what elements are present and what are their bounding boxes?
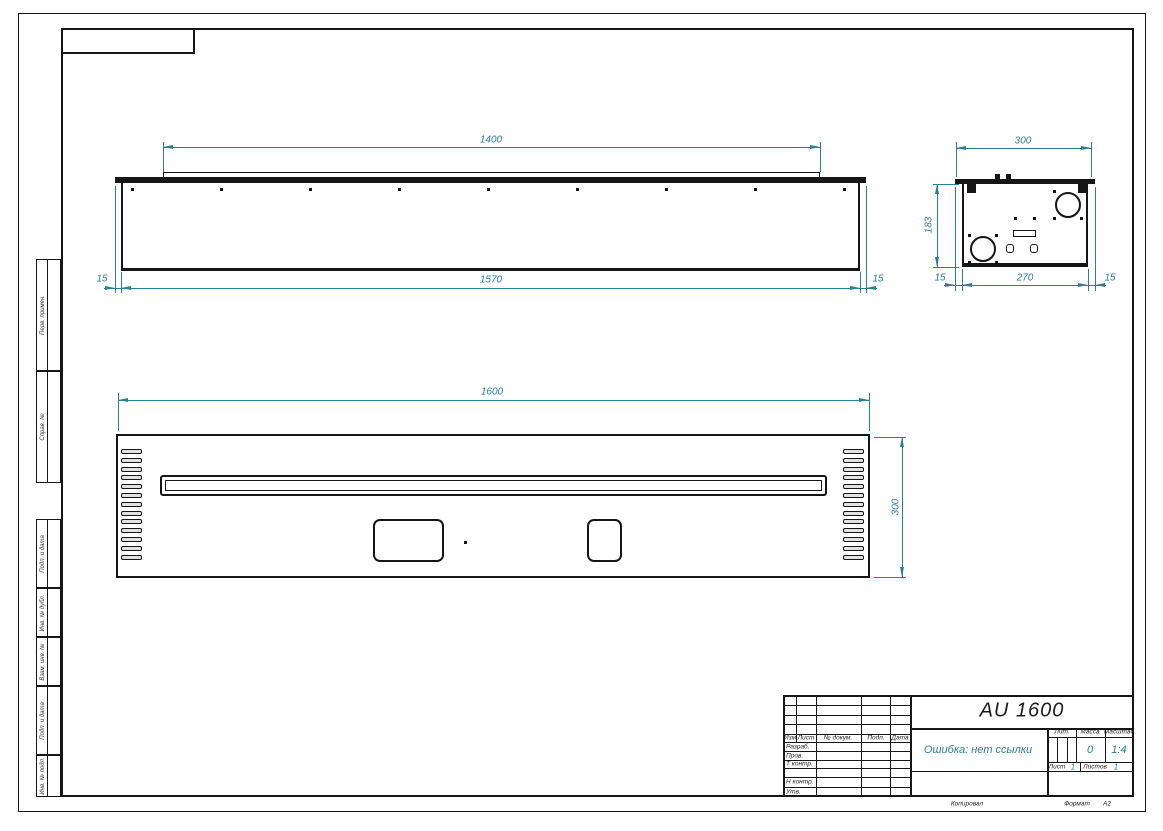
- vent-slot: [843, 555, 864, 560]
- cutout-small: [587, 519, 622, 562]
- vent-slot: [121, 511, 142, 516]
- arrow: [105, 286, 115, 290]
- side-tab: [995, 174, 1000, 179]
- row-developed: Разраб.: [786, 744, 810, 751]
- doc-name-error: Ошибка: нет ссылки: [924, 744, 1032, 756]
- arrow: [945, 283, 955, 287]
- rivet-hole: [131, 188, 134, 191]
- margin-cell-inv-podl: Инв. № подл.: [36, 755, 61, 797]
- dim-label-300-side: 300: [1015, 136, 1032, 147]
- extension-line: [1095, 187, 1096, 291]
- format-value: А2: [1103, 801, 1111, 808]
- fan-mount-hole: [1053, 217, 1056, 220]
- cutout-large: [373, 519, 444, 562]
- drawing-designation: AU 1600: [980, 700, 1065, 723]
- title-block-line: [783, 715, 910, 716]
- dim-line: [118, 400, 869, 401]
- vent-slot: [843, 537, 864, 542]
- vent-slot: [121, 502, 142, 507]
- vent-slot: [843, 528, 864, 533]
- extension-line: [962, 269, 963, 291]
- margin-cell-divider: [47, 259, 48, 371]
- col-izm: Изм: [784, 735, 796, 742]
- dim-label-300-front: 300: [891, 499, 902, 516]
- arrow: [866, 286, 876, 290]
- row-approved: Утв.: [786, 789, 801, 796]
- fan-mount-hole: [1053, 190, 1056, 193]
- dim-label-183: 183: [924, 217, 935, 234]
- rivet-hole: [843, 188, 846, 191]
- col-podp: Подп.: [867, 735, 884, 742]
- dim-line: [956, 148, 1091, 149]
- round-hole: [1030, 244, 1038, 253]
- arrow: [118, 398, 128, 402]
- rivet-hole: [665, 188, 668, 191]
- extension-line: [820, 142, 821, 172]
- margin-cell-podp-data-2: Подп. и дата: [36, 686, 61, 755]
- margin-label: Перв. примен.: [40, 295, 46, 335]
- title-block-line: [783, 787, 910, 788]
- dim-label-15-left: 15: [96, 274, 107, 285]
- margin-cell-divider: [47, 371, 48, 483]
- arrow: [163, 145, 173, 149]
- col-data: Дата: [891, 735, 908, 742]
- arrow: [935, 257, 939, 267]
- arrow: [900, 437, 904, 447]
- topleft-reference-box: [61, 28, 195, 54]
- rivet-hole: [576, 188, 579, 191]
- vent-slot: [121, 475, 142, 480]
- margin-label: Инв. № подл.: [40, 757, 46, 794]
- fan-cutout-top-right: [1055, 192, 1081, 218]
- vent-slot: [843, 502, 864, 507]
- title-block-line: [1080, 762, 1081, 771]
- rivet-hole: [309, 188, 312, 191]
- margin-cell-perv-primen: Перв. примен.: [36, 259, 61, 371]
- vent-slot: [843, 493, 864, 498]
- vent-slot: [121, 546, 142, 551]
- dim-label-1400: 1400: [480, 135, 502, 146]
- dim-label-1600: 1600: [481, 387, 503, 398]
- top-view-holes: [131, 188, 843, 191]
- margin-cell-divider: [47, 686, 48, 755]
- title-block-line: [1067, 737, 1068, 762]
- vent-slot: [843, 475, 864, 480]
- margin-cell-vzam-inv: Взам. инв. №: [36, 637, 61, 686]
- sheets-value: 1: [1114, 763, 1118, 772]
- vent-slot: [843, 519, 864, 524]
- copied-label: Копировал: [951, 801, 983, 808]
- dim-line: [163, 147, 820, 148]
- burner-slot-inner: [165, 480, 822, 491]
- front-vents-right: [843, 449, 865, 565]
- dim-line: [937, 184, 938, 267]
- inner-drawing-frame: [61, 28, 1134, 797]
- vent-slot: [121, 484, 142, 489]
- lit-label: Лит.: [1054, 729, 1069, 736]
- vent-slot: [121, 528, 142, 533]
- rivet-hole: [398, 188, 401, 191]
- extension-line: [1091, 142, 1092, 177]
- arrow: [962, 283, 972, 287]
- title-block-line: [1057, 737, 1058, 762]
- vent-slot: [843, 546, 864, 551]
- margin-cell-podp-data-1: Подп. и дата: [36, 519, 61, 588]
- extension-line: [869, 393, 870, 431]
- vent-slot: [843, 484, 864, 489]
- row-tcontrol: Т контр.: [786, 761, 813, 768]
- vent-slot: [121, 555, 142, 560]
- vent-slot: [843, 449, 864, 454]
- margin-label: Инв. № дубл.: [40, 594, 46, 631]
- vent-slot: [843, 458, 864, 463]
- dim-line: [104, 288, 877, 289]
- scale-label: Масштаб: [1104, 729, 1134, 736]
- fan-cutout-bottom-left: [970, 236, 996, 262]
- arrow: [859, 398, 869, 402]
- extension-line: [866, 186, 867, 293]
- arrow: [850, 286, 860, 290]
- side-tab: [1006, 174, 1011, 179]
- arrow: [121, 286, 131, 290]
- extension-line: [874, 577, 906, 578]
- connector-slot: [1013, 230, 1036, 237]
- vent-slot: [121, 537, 142, 542]
- margin-cell-divider: [47, 519, 48, 588]
- dim-line: [902, 437, 903, 577]
- title-block-line: [1076, 728, 1077, 762]
- title-block-line: [910, 728, 1134, 730]
- pilot-hole: [464, 541, 467, 544]
- dim-label-15-side-left: 15: [934, 273, 945, 284]
- vent-slot: [843, 467, 864, 472]
- vent-slot: [121, 458, 142, 463]
- mass-value: 0: [1087, 744, 1093, 756]
- rivet-hole: [487, 188, 490, 191]
- margin-label: Подп. и дата: [40, 535, 46, 573]
- front-vents-left: [121, 449, 143, 565]
- fan-mount-hole: [995, 261, 998, 264]
- title-block-line: [783, 768, 910, 769]
- arrow: [1081, 146, 1091, 150]
- small-hole: [1014, 217, 1017, 220]
- vent-slot: [121, 519, 142, 524]
- rivet-hole: [220, 188, 223, 191]
- fan-mount-hole: [1080, 217, 1083, 220]
- vent-slot: [843, 511, 864, 516]
- dim-label-1570: 1570: [480, 275, 502, 286]
- col-dokum: № докум.: [824, 735, 853, 742]
- vent-slot: [121, 449, 142, 454]
- sheets-label: Листов: [1083, 764, 1107, 771]
- margin-cell-sprav-no: Справ. №: [36, 371, 61, 483]
- extension-line: [1088, 269, 1089, 291]
- margin-cell-divider: [47, 588, 48, 637]
- title-block-line: [910, 771, 1134, 772]
- extension-line: [955, 187, 956, 291]
- title-block-line: [1047, 737, 1134, 738]
- fan-mount-hole: [995, 234, 998, 237]
- side-corner-mark: [967, 184, 976, 193]
- title-block-line: [861, 695, 862, 797]
- vent-slot: [121, 467, 142, 472]
- dim-label-15-side-right: 15: [1104, 273, 1115, 284]
- drawing-sheet: Перв. примен. Справ. № Подп. и дата Инв.…: [0, 0, 1163, 831]
- title-block-line: [890, 695, 891, 797]
- margin-cell-inv-dubl: Инв. № дубл.: [36, 588, 61, 637]
- format-label: Формат: [1064, 801, 1090, 808]
- row-ncontrol: Н контр.: [786, 779, 814, 786]
- col-list: Лист: [798, 735, 815, 742]
- sheet-value: 1: [1071, 763, 1075, 772]
- extension-line: [115, 186, 116, 293]
- small-hole: [1033, 217, 1036, 220]
- margin-cell-divider: [47, 755, 48, 797]
- arrow: [1095, 283, 1105, 287]
- dim-label-15-right: 15: [872, 274, 883, 285]
- mass-label: Масса: [1080, 729, 1099, 736]
- arrow: [810, 145, 820, 149]
- scale-value: 1:4: [1111, 744, 1126, 756]
- margin-label: Взам. инв. №: [40, 643, 46, 680]
- arrow: [935, 184, 939, 194]
- margin-label: Справ. №: [40, 413, 46, 440]
- arrow: [1078, 283, 1088, 287]
- top-view-body: [121, 183, 860, 271]
- dim-label-270: 270: [1017, 273, 1034, 284]
- fan-mount-hole: [1080, 190, 1083, 193]
- rivet-hole: [754, 188, 757, 191]
- round-hole: [1006, 244, 1014, 253]
- margin-label: Подп. и дата: [40, 702, 46, 740]
- title-block-line: [783, 705, 910, 706]
- arrow: [956, 146, 966, 150]
- sheet-label: Лист: [1049, 764, 1066, 771]
- fan-mount-hole: [968, 261, 971, 264]
- arrow: [900, 567, 904, 577]
- title-block-line: [816, 695, 817, 797]
- vent-slot: [121, 493, 142, 498]
- title-block-line: [910, 695, 912, 797]
- title-block-line: [783, 724, 910, 725]
- row-checked: Пров.: [786, 753, 803, 760]
- margin-cell-divider: [47, 637, 48, 686]
- extension-line: [860, 272, 861, 293]
- front-panel: [116, 434, 870, 578]
- fan-mount-hole: [968, 234, 971, 237]
